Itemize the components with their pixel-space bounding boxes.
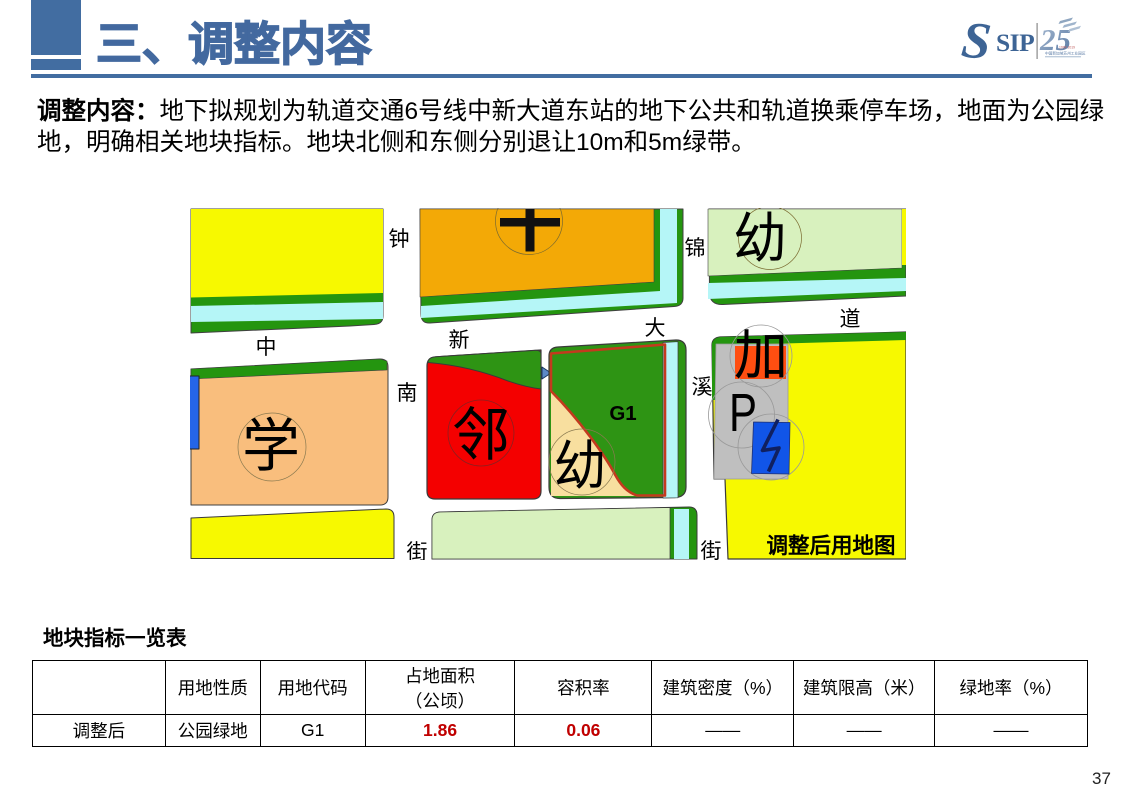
svg-text:幼: 幼 (554, 437, 607, 496)
svg-text:中国新加坡苏州工业园区: 中国新加坡苏州工业园区 (1045, 51, 1086, 56)
svg-text:1994 2019: 1994 2019 (1059, 46, 1075, 50)
svg-text:S: S (960, 11, 994, 62)
svg-text:街: 街 (407, 541, 428, 560)
svg-text:道: 道 (840, 308, 861, 331)
svg-text:南: 南 (397, 382, 418, 405)
svg-text:调整后用地图: 调整后用地图 (766, 533, 895, 558)
svg-text:幼: 幼 (733, 209, 787, 269)
svg-text:加: 加 (734, 326, 788, 386)
svg-text:邻: 邻 (452, 403, 510, 468)
svg-text:大: 大 (645, 317, 666, 340)
svg-text:锦: 锦 (685, 237, 706, 260)
svg-text:SIP: SIP (996, 28, 1034, 57)
svg-text:街: 街 (701, 540, 722, 560)
svg-text:钟: 钟 (389, 228, 410, 251)
svg-text:中: 中 (256, 336, 277, 359)
svg-text:新: 新 (449, 329, 470, 352)
svg-text:G1: G1 (609, 402, 636, 425)
svg-text:溪: 溪 (692, 376, 713, 399)
svg-text:学: 学 (242, 414, 300, 479)
